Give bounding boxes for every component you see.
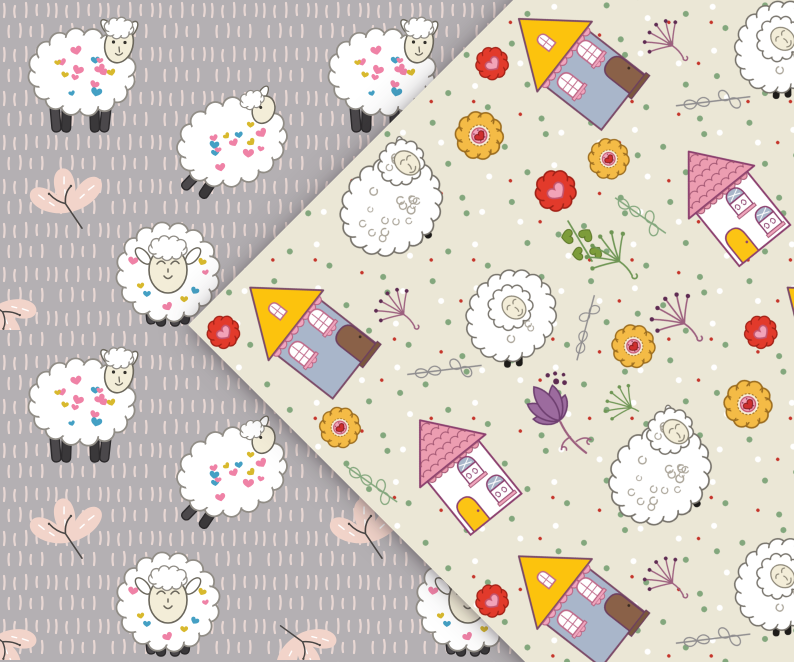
pattern-preview-image [0, 0, 794, 662]
